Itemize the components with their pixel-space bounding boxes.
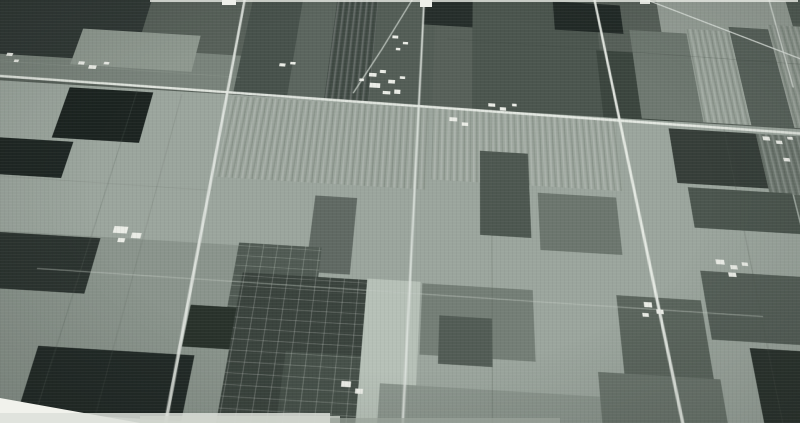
farmland-scene	[0, 0, 800, 423]
aerial-photograph	[0, 0, 800, 423]
field-mosaic	[0, 0, 800, 423]
photo-projection	[0, 0, 800, 423]
page-background	[0, 0, 800, 423]
farmland-ground-plane	[0, 0, 800, 423]
